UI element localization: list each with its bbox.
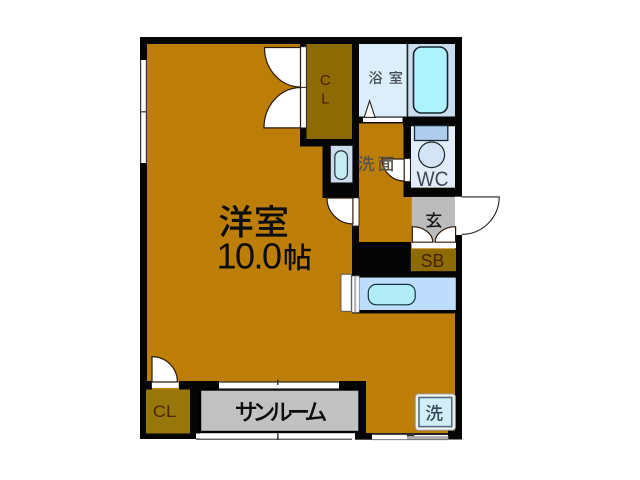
svg-text:WC: WC bbox=[417, 168, 449, 191]
svg-text:SB: SB bbox=[421, 251, 445, 271]
svg-text:CL: CL bbox=[153, 402, 177, 421]
svg-text:C: C bbox=[320, 73, 330, 89]
svg-text:10.0: 10.0 bbox=[217, 236, 282, 277]
svg-text:L: L bbox=[321, 92, 329, 108]
